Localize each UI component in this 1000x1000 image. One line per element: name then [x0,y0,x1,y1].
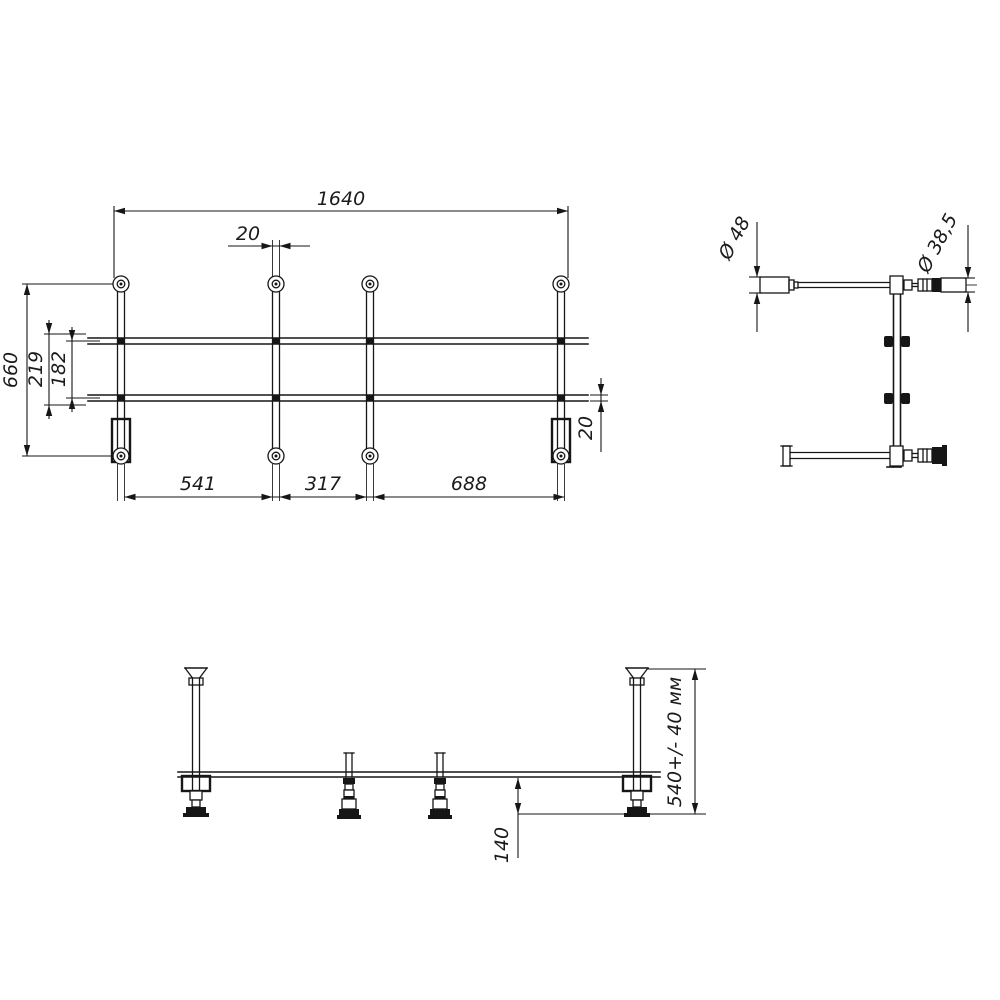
dim-cup-diameter-label: Ø 48 [714,213,755,264]
top-cross-tube [760,276,977,294]
dim-cup-diameter: Ø 48 [714,213,762,332]
dim-leg-diameter-label: Ø 38,5 [913,210,963,277]
cross-tube-4 [558,284,565,501]
support-cup-side [760,277,789,293]
adjustable-leg [904,445,947,466]
cup [362,276,378,292]
front-left-bracket [182,776,210,791]
support-cups [113,276,569,464]
dim-rail-inner-spacing-label: 182 [48,351,70,387]
adjustable-leg [904,278,977,292]
bathtub-frame-drawing: 1640 20 660 219 [0,0,1000,1000]
middle-foot-2 [428,753,452,819]
dim-span-left-label: 541 [180,473,216,495]
dim-total-length: 1640 [114,188,568,278]
right-end-foot [624,791,650,817]
middle-foot-1 [337,753,361,819]
side-rail [887,277,901,467]
side-view: Ø 48 Ø 38,5 [714,210,977,467]
front-view: 540+/- 40 мм 140 [178,668,706,863]
left-end-foot [183,791,209,817]
lower-rail [88,395,588,401]
technical-drawing-page: 1640 20 660 219 [0,0,1000,1000]
cup [553,448,569,464]
dim-span-chain: 541 317 688 [125,473,565,500]
dim-total-length-label: 1640 [317,188,365,210]
dim-rail-width-label: 20 [575,416,597,440]
cup [268,276,284,292]
plan-view: 1640 20 660 219 [0,188,608,501]
dim-tube-width: 20 [228,223,310,249]
cup [268,448,284,464]
front-rail [178,772,660,777]
dim-leg-diameter: Ø 38,5 [913,210,975,332]
rail-clamps [884,336,910,404]
dim-foot-clearance: 140 [491,778,521,863]
intersection-nodes [118,338,565,402]
cup [113,276,129,292]
upper-rail [88,338,588,344]
dim-foot-clearance-label: 140 [491,827,513,863]
dim-frame-height: 540+/- 40 мм [648,669,706,814]
dim-span-middle-label: 317 [305,473,341,495]
cup [553,276,569,292]
dim-total-width-label: 660 [0,352,22,388]
cup [113,448,129,464]
dim-rail-width: 20 [575,378,608,452]
dim-rail-outer-spacing-label: 219 [25,351,47,387]
dim-frame-height-label: 540+/- 40 мм [664,677,686,807]
bottom-cross-tube [781,445,947,466]
dim-span-right-label: 688 [451,473,487,495]
front-right-bracket [623,776,651,791]
dim-rail-inner-spacing: 182 [48,327,100,412]
cup [362,448,378,464]
dim-tube-width-label: 20 [236,223,260,245]
cross-tube-1 [118,284,125,501]
cross-tube-3 [367,284,374,501]
